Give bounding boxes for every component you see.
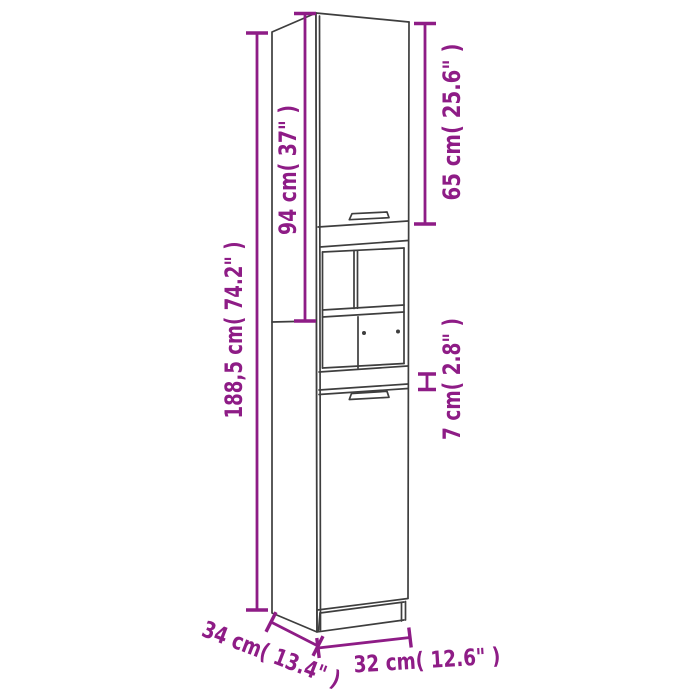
lower-door-handle: [349, 391, 389, 399]
dimension-upper-door: 65 cm( 25.6" ): [414, 24, 466, 225]
dimension-apron-gap: 7 cm( 2.8" ): [418, 318, 466, 440]
dimension-total-height: 188,5 cm( 74.2" ): [220, 33, 268, 610]
front-right-edge: [408, 22, 409, 598]
upper-door-label: 65 cm( 25.6" ): [438, 44, 466, 201]
front-left-edge: [316, 13, 317, 632]
inner-panel-knob-left: [362, 331, 366, 335]
front-face: [316, 13, 409, 632]
upper-section-label: 94 cm( 37" ): [274, 105, 302, 235]
apron-gap-label: 7 cm( 2.8" ): [438, 318, 466, 440]
dimension-width: 32 cm( 12.6" ): [317, 628, 501, 679]
width-label: 32 cm( 12.6" ): [353, 644, 501, 679]
dimension-diagram: 188,5 cm( 74.2" ) 94 cm( 37" ) 65 cm( 25…: [0, 0, 700, 700]
inner-panel-knob-right: [396, 330, 400, 334]
cabinet-dimension-svg: 188,5 cm( 74.2" ) 94 cm( 37" ) 65 cm( 25…: [0, 0, 700, 700]
total-height-label: 188,5 cm( 74.2" ): [220, 242, 248, 419]
front-left-inner-edge: [320, 16, 321, 630]
upper-door-handle: [349, 212, 389, 220]
